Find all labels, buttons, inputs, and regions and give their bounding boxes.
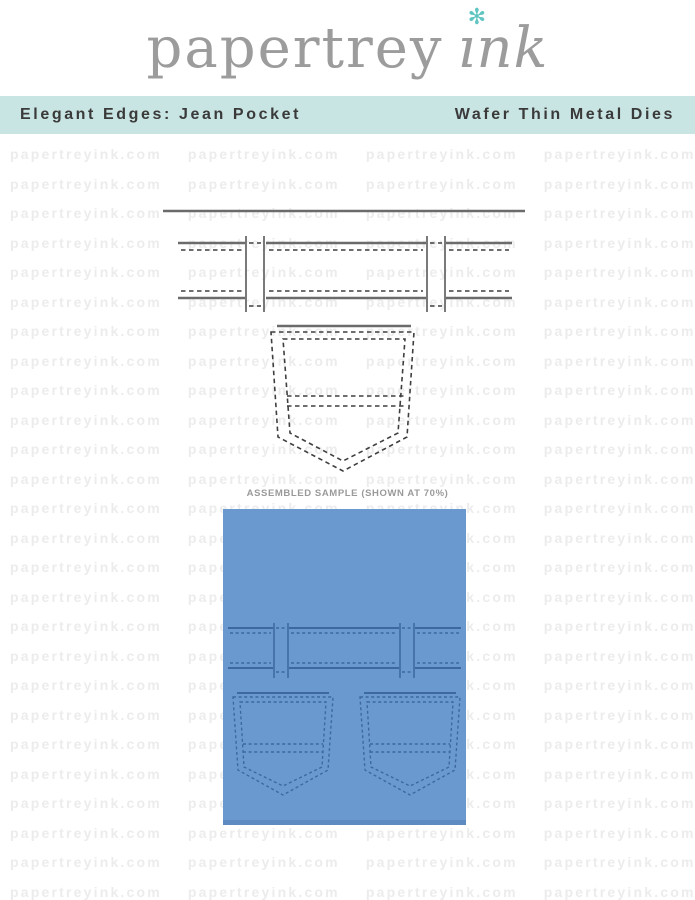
die-diagram <box>0 0 695 900</box>
belt-loops <box>246 236 445 312</box>
sample-card-bottom-shade <box>223 820 466 825</box>
assembled-sample <box>223 509 466 825</box>
belt-loop-fold-marks <box>249 243 442 306</box>
pocket-inner-stitch <box>283 339 405 461</box>
die-waistband <box>178 236 512 312</box>
pocket-accent-stitch-rows <box>287 396 404 406</box>
pocket-outer-outline <box>271 332 414 471</box>
product-sheet: papertreyink.compapertreyink.compapertre… <box>0 0 695 900</box>
die-jean-pocket <box>271 326 414 471</box>
